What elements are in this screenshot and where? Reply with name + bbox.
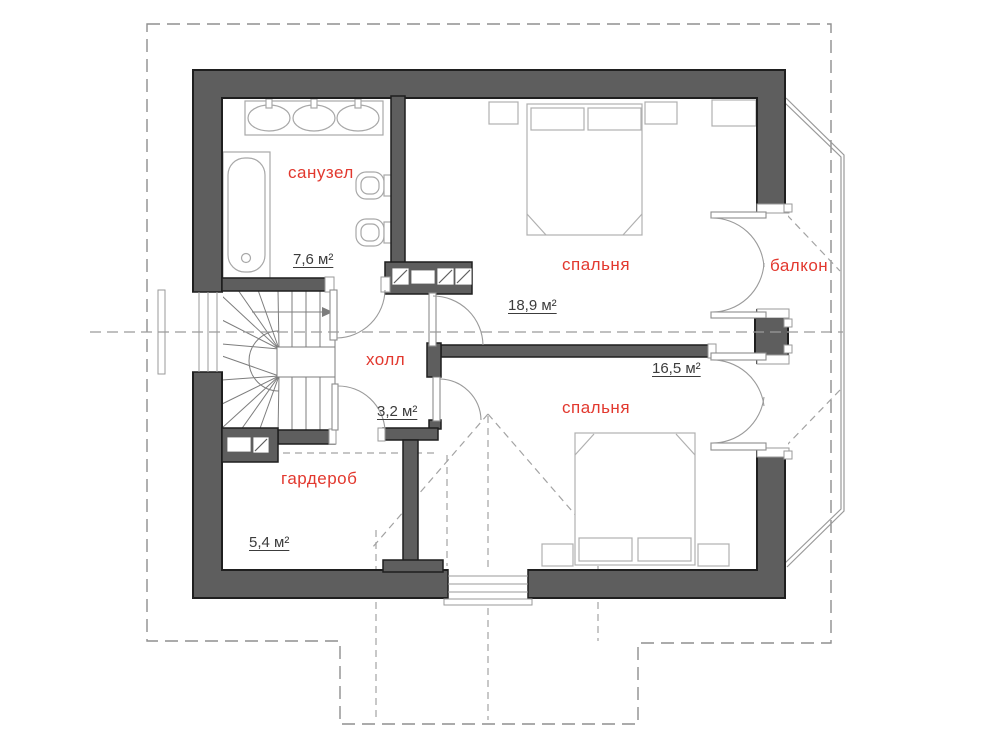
room-label-bedroom-top: спальня: [562, 255, 630, 275]
room-label-bathroom: санузел: [288, 163, 354, 183]
room-label-balcony: балкон: [770, 256, 828, 276]
floor-plan: санузел 7,6 м² спальня 18,9 м² балкон хо…: [0, 0, 1000, 750]
room-label-bedroom-bottom: спальня: [562, 398, 630, 418]
area-label-bathroom: 7,6 м²: [293, 251, 333, 268]
room-label-wardrobe: гардероб: [281, 469, 357, 489]
area-label-bedroom-top: 18,9 м²: [508, 297, 557, 314]
room-label-hall: холл: [366, 350, 405, 370]
area-label-wardrobe: 5,4 м²: [249, 534, 289, 551]
area-label-bedroom-bottom: 16,5 м²: [652, 360, 701, 377]
area-label-hall: 3,2 м²: [377, 403, 417, 420]
labels: санузел 7,6 м² спальня 18,9 м² балкон хо…: [0, 0, 1000, 750]
